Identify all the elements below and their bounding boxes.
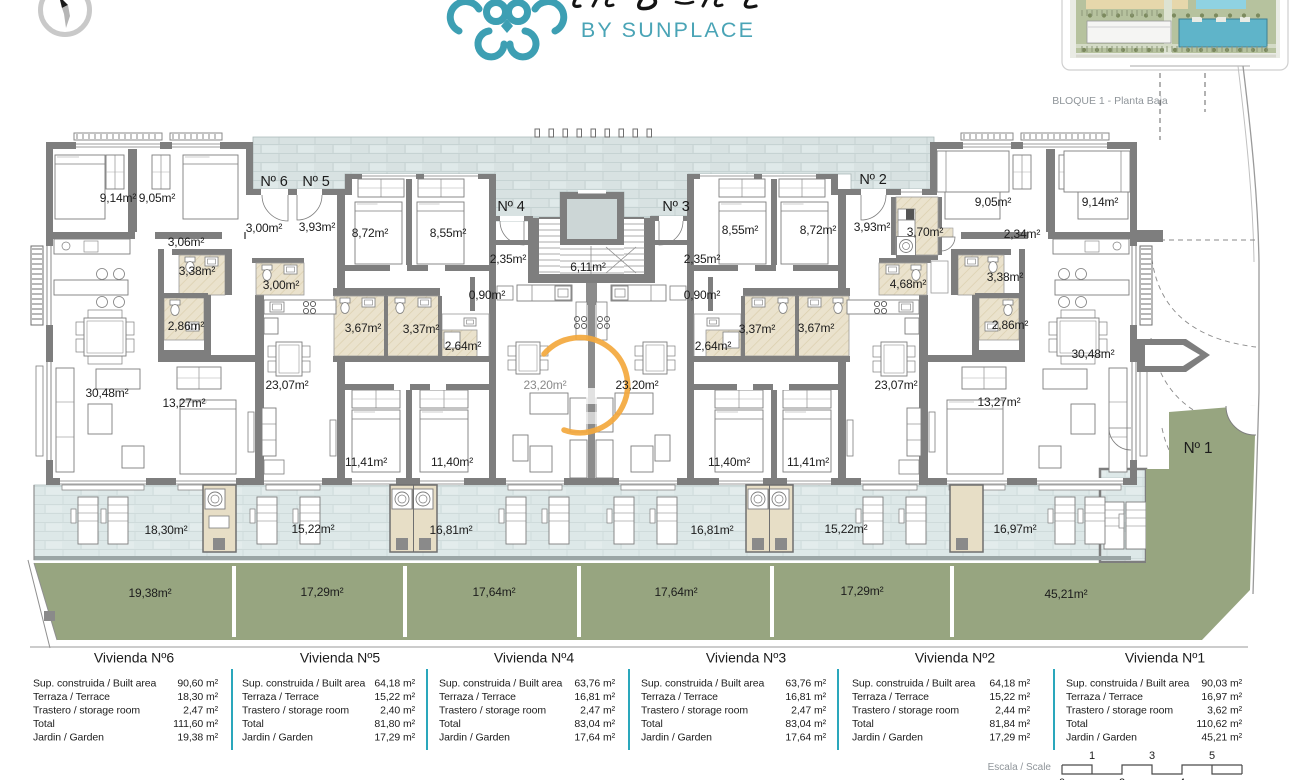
svg-text:17,29 m²: 17,29 m²: [374, 732, 415, 744]
svg-text:17,29m²: 17,29m²: [301, 585, 344, 599]
svg-text:8,72m²: 8,72m²: [352, 226, 389, 240]
svg-text:45,21m²: 45,21m²: [1045, 587, 1088, 601]
svg-text:17,29 m²: 17,29 m²: [989, 732, 1030, 744]
svg-text:3,93m²: 3,93m²: [299, 220, 336, 234]
svg-text:3,38m²: 3,38m²: [179, 264, 216, 278]
svg-text:19,38m²: 19,38m²: [129, 586, 172, 600]
svg-text:83,04 m²: 83,04 m²: [574, 718, 615, 730]
svg-text:0,90m²: 0,90m²: [469, 288, 506, 302]
svg-text:2,47 m²: 2,47 m²: [580, 705, 615, 717]
svg-text:Jardin / Garden: Jardin / Garden: [33, 732, 104, 744]
svg-text:3,38m²: 3,38m²: [987, 270, 1024, 284]
svg-text:Trastero / storage room: Trastero / storage room: [1066, 705, 1173, 717]
svg-text:Sup. construida / Built area: Sup. construida / Built area: [33, 678, 157, 690]
svg-text:9,05m²: 9,05m²: [975, 195, 1012, 209]
svg-text:16,97m²: 16,97m²: [994, 522, 1037, 536]
svg-text:30,48m²: 30,48m²: [1072, 347, 1115, 361]
svg-text:1: 1: [1089, 750, 1095, 762]
svg-text:2,86m²: 2,86m²: [168, 319, 205, 333]
svg-text:81,80 m²: 81,80 m²: [374, 718, 415, 730]
svg-text:17,64 m²: 17,64 m²: [785, 732, 826, 744]
svg-text:Terraza / Terrace: Terraza / Terrace: [439, 691, 516, 703]
svg-text:Nº 2: Nº 2: [859, 172, 886, 188]
svg-text:Total: Total: [1066, 718, 1088, 730]
svg-text:9,05m²: 9,05m²: [139, 191, 176, 205]
svg-text:11,40m²: 11,40m²: [431, 455, 473, 469]
svg-text:Terraza / Terrace: Terraza / Terrace: [641, 691, 718, 703]
svg-text:3,06m²: 3,06m²: [168, 235, 205, 249]
svg-text:64,18 m²: 64,18 m²: [374, 678, 415, 690]
svg-text:110,62 m²: 110,62 m²: [1196, 718, 1242, 730]
svg-text:Sup. construida / Built area: Sup. construida / Built area: [852, 678, 976, 690]
svg-text:Nº 6: Nº 6: [260, 174, 287, 190]
svg-text:3: 3: [1149, 750, 1155, 762]
svg-text:2,47 m²: 2,47 m²: [791, 705, 826, 717]
svg-text:13,27m²: 13,27m²: [978, 395, 1021, 409]
svg-text:Sup. construida / Built area: Sup. construida / Built area: [242, 678, 366, 690]
svg-text:23,20m²: 23,20m²: [616, 378, 659, 392]
svg-text:15,22 m²: 15,22 m²: [374, 691, 415, 703]
svg-text:Terraza / Terrace: Terraza / Terrace: [242, 691, 319, 703]
svg-text:63,76 m²: 63,76 m²: [574, 678, 615, 690]
svg-text:Total: Total: [33, 718, 55, 730]
svg-text:3,37m²: 3,37m²: [403, 322, 440, 336]
svg-text:2,35m²: 2,35m²: [684, 252, 721, 266]
svg-text:Vivienda Nº2: Vivienda Nº2: [915, 650, 996, 666]
svg-text:23,20m²: 23,20m²: [524, 378, 567, 392]
svg-text:16,81m²: 16,81m²: [430, 523, 473, 537]
svg-text:8,55m²: 8,55m²: [430, 226, 467, 240]
svg-text:90,60 m²: 90,60 m²: [177, 678, 218, 690]
svg-text:Total: Total: [641, 718, 663, 730]
svg-text:8,72m²: 8,72m²: [800, 223, 837, 237]
svg-text:Jardin / Garden: Jardin / Garden: [641, 732, 712, 744]
svg-text:Vivienda Nº6: Vivienda Nº6: [94, 650, 175, 666]
svg-text:16,81m²: 16,81m²: [691, 523, 734, 537]
svg-text:3,93m²: 3,93m²: [854, 220, 891, 234]
svg-text:3,37m²: 3,37m²: [739, 322, 776, 336]
svg-text:64,18 m²: 64,18 m²: [989, 678, 1030, 690]
svg-text:Trastero / storage room: Trastero / storage room: [439, 705, 546, 717]
svg-text:18,30m²: 18,30m²: [145, 523, 188, 537]
svg-text:15,22m²: 15,22m²: [825, 522, 868, 536]
svg-text:16,97 m²: 16,97 m²: [1201, 691, 1242, 703]
svg-text:2,64m²: 2,64m²: [695, 339, 732, 353]
svg-text:Trastero / storage room: Trastero / storage room: [852, 705, 959, 717]
svg-text:83,04 m²: 83,04 m²: [785, 718, 826, 730]
svg-text:15,22m²: 15,22m²: [292, 522, 335, 536]
svg-text:2,86m²: 2,86m²: [992, 318, 1029, 332]
svg-text:Nº 1: Nº 1: [1184, 440, 1213, 457]
svg-text:Terraza / Terrace: Terraza / Terrace: [1066, 691, 1143, 703]
svg-text:23,07m²: 23,07m²: [266, 378, 309, 392]
svg-text:2,47 m²: 2,47 m²: [183, 705, 218, 717]
svg-text:16,81 m²: 16,81 m²: [574, 691, 615, 703]
svg-text:11,41m²: 11,41m²: [345, 455, 387, 469]
svg-text:3,62 m²: 3,62 m²: [1207, 705, 1242, 717]
svg-text:Total: Total: [242, 718, 264, 730]
svg-text:Jardin / Garden: Jardin / Garden: [242, 732, 313, 744]
svg-text:63,76 m²: 63,76 m²: [785, 678, 826, 690]
svg-text:3,00m²: 3,00m²: [246, 221, 283, 235]
svg-text:Trastero / storage room: Trastero / storage room: [641, 705, 748, 717]
svg-text:17,64 m²: 17,64 m²: [574, 732, 615, 744]
svg-text:90,03 m²: 90,03 m²: [1201, 678, 1242, 690]
svg-text:18,30 m²: 18,30 m²: [177, 691, 218, 703]
svg-text:Vivienda Nº4: Vivienda Nº4: [494, 650, 575, 666]
svg-text:3,67m²: 3,67m²: [798, 321, 835, 335]
svg-text:2,40 m²: 2,40 m²: [380, 705, 415, 717]
svg-text:Total: Total: [439, 718, 461, 730]
svg-text:3,00m²: 3,00m²: [263, 278, 300, 292]
svg-text:Sup. construida / Built area: Sup. construida / Built area: [1066, 678, 1190, 690]
svg-text:Terraza / Terrace: Terraza / Terrace: [852, 691, 929, 703]
svg-text:6,11m²: 6,11m²: [570, 260, 606, 274]
svg-text:45,21 m²: 45,21 m²: [1201, 732, 1242, 744]
svg-text:23,07m²: 23,07m²: [875, 378, 918, 392]
svg-text:11,40m²: 11,40m²: [708, 455, 750, 469]
svg-text:2,34m²: 2,34m²: [1004, 227, 1041, 241]
svg-text:3,70m²: 3,70m²: [907, 225, 944, 239]
svg-text:Nº 5: Nº 5: [302, 174, 329, 190]
svg-text:Jardin / Garden: Jardin / Garden: [852, 732, 923, 744]
svg-text:Total: Total: [852, 718, 874, 730]
svg-text:15,22 m²: 15,22 m²: [989, 691, 1030, 703]
svg-text:17,64m²: 17,64m²: [655, 585, 698, 599]
svg-text:BLOQUE 1 - Planta Baja: BLOQUE 1 - Planta Baja: [1052, 95, 1168, 107]
svg-text:11,41m²: 11,41m²: [787, 455, 829, 469]
svg-text:Sup. construida / Built area: Sup. construida / Built area: [641, 678, 765, 690]
svg-text:30,48m²: 30,48m²: [86, 386, 129, 400]
svg-text:Trastero / storage room: Trastero / storage room: [242, 705, 349, 717]
svg-text:81,84 m²: 81,84 m²: [989, 718, 1030, 730]
svg-text:Terraza / Terrace: Terraza / Terrace: [33, 691, 110, 703]
svg-text:Jardin / Garden: Jardin / Garden: [1066, 732, 1137, 744]
svg-text:111,60 m²: 111,60 m²: [173, 718, 218, 730]
svg-text:9,14m²: 9,14m²: [100, 191, 137, 205]
svg-text:Trastero / storage room: Trastero / storage room: [33, 705, 140, 717]
svg-text:Jardin / Garden: Jardin / Garden: [439, 732, 510, 744]
svg-text:BY SUNPLACE: BY SUNPLACE: [581, 18, 755, 42]
svg-text:2,64m²: 2,64m²: [445, 339, 482, 353]
svg-text:8,55m²: 8,55m²: [722, 223, 759, 237]
svg-text:16,81 m²: 16,81 m²: [785, 691, 826, 703]
svg-text:19,38 m²: 19,38 m²: [177, 732, 218, 744]
svg-text:5: 5: [1209, 750, 1215, 762]
svg-text:Vivienda Nº3: Vivienda Nº3: [706, 650, 787, 666]
svg-text:Vivienda Nº5: Vivienda Nº5: [300, 650, 381, 666]
svg-text:17,29m²: 17,29m²: [841, 584, 884, 598]
svg-text:Sup. construida / Built area: Sup. construida / Built area: [439, 678, 563, 690]
svg-text:Vivienda Nº1: Vivienda Nº1: [1125, 650, 1206, 666]
svg-text:4,68m²: 4,68m²: [890, 277, 927, 291]
svg-text:Nº 3: Nº 3: [662, 199, 689, 215]
svg-text:2,44 m²: 2,44 m²: [995, 705, 1030, 717]
svg-text:Nº 4: Nº 4: [497, 199, 524, 215]
svg-text:Escala / Scale: Escala / Scale: [988, 762, 1052, 773]
svg-text:3,67m²: 3,67m²: [345, 321, 382, 335]
svg-text:17,64m²: 17,64m²: [473, 585, 516, 599]
svg-text:0,90m²: 0,90m²: [684, 288, 721, 302]
svg-text:13,27m²: 13,27m²: [163, 396, 206, 410]
svg-text:9,14m²: 9,14m²: [1082, 195, 1119, 209]
svg-text:2,35m²: 2,35m²: [490, 252, 527, 266]
